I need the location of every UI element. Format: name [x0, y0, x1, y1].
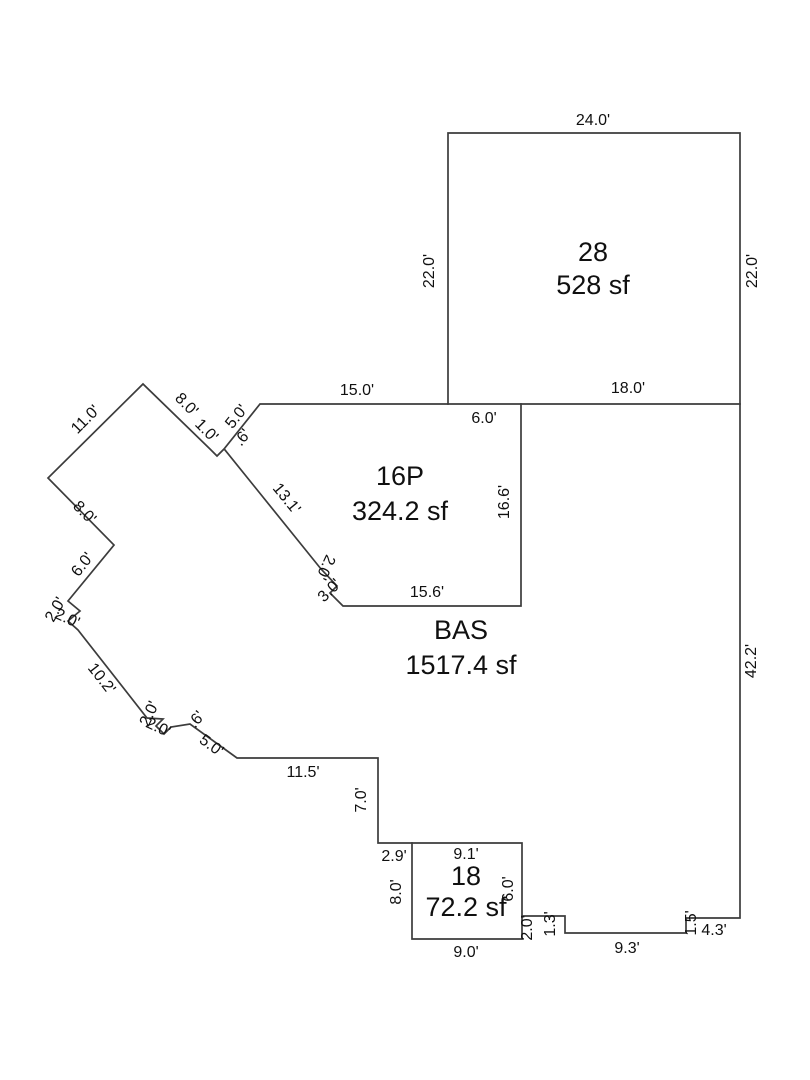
dimension-label: 11.5': [286, 764, 319, 781]
area-size-label: 1517.4 sf: [405, 650, 517, 680]
area-code-label: 28: [578, 237, 608, 267]
dimension-label: 8.0': [69, 498, 99, 528]
dimension-label: 8.0': [388, 879, 405, 904]
dimension-label: 18.0': [611, 380, 645, 397]
dimension-label: 10.2': [84, 660, 118, 697]
dimension-label: 1.0': [191, 416, 221, 446]
dimension-label: 4.3': [701, 922, 726, 939]
dimension-label: 6.0': [68, 550, 97, 580]
dimension-label: 15.6': [410, 584, 444, 601]
dimension-label: 22.0': [421, 254, 438, 288]
dimension-label: 24.0': [576, 112, 610, 129]
dimension-label: 2.9': [381, 848, 406, 865]
dimension-label: 11.0': [68, 402, 103, 437]
floorplan-sketch: 24.0'22.0'22.0'18.0'6.0'15.0'11.0'8.0'1.…: [0, 0, 810, 1080]
dimension-label: 2.0': [519, 915, 536, 940]
area-code-label: 18: [451, 861, 481, 891]
dimension-label: 42.2': [743, 644, 760, 678]
outer-boundary: [48, 133, 740, 933]
dimension-label: 22.0': [744, 254, 761, 288]
dimension-label: 2.0': [143, 715, 173, 741]
area-size-label: 324.2 sf: [352, 496, 449, 526]
dimension-label: 1.3': [542, 911, 559, 936]
area-code-label: 16P: [376, 461, 424, 491]
sketch-svg: 24.0'22.0'22.0'18.0'6.0'15.0'11.0'8.0'1.…: [0, 0, 810, 1080]
dimension-label: 9.3': [614, 940, 639, 957]
dimension-label: 1.5': [683, 910, 700, 935]
dimension-label: .6': [185, 708, 209, 731]
area-labels: 28528 sf16P324.2 sfBAS1517.4 sf1872.2 sf: [352, 237, 630, 922]
dimension-label: 15.0': [340, 382, 374, 399]
dimension-label: 6.0': [471, 410, 496, 427]
dimension-label: 3.0': [315, 576, 345, 606]
dimension-label: 7.0': [353, 787, 370, 812]
area-size-label: 528 sf: [556, 270, 630, 300]
area-size-label: 72.2 sf: [425, 892, 507, 922]
dimension-label: 16.6': [496, 485, 513, 519]
dimension-labels: 24.0'22.0'22.0'18.0'6.0'15.0'11.0'8.0'1.…: [42, 112, 761, 961]
dimension-label: 5.0': [196, 731, 226, 760]
dimension-label: 9.0': [453, 944, 478, 961]
area-code-label: BAS: [434, 615, 488, 645]
dimension-label: 5.0': [222, 402, 251, 432]
